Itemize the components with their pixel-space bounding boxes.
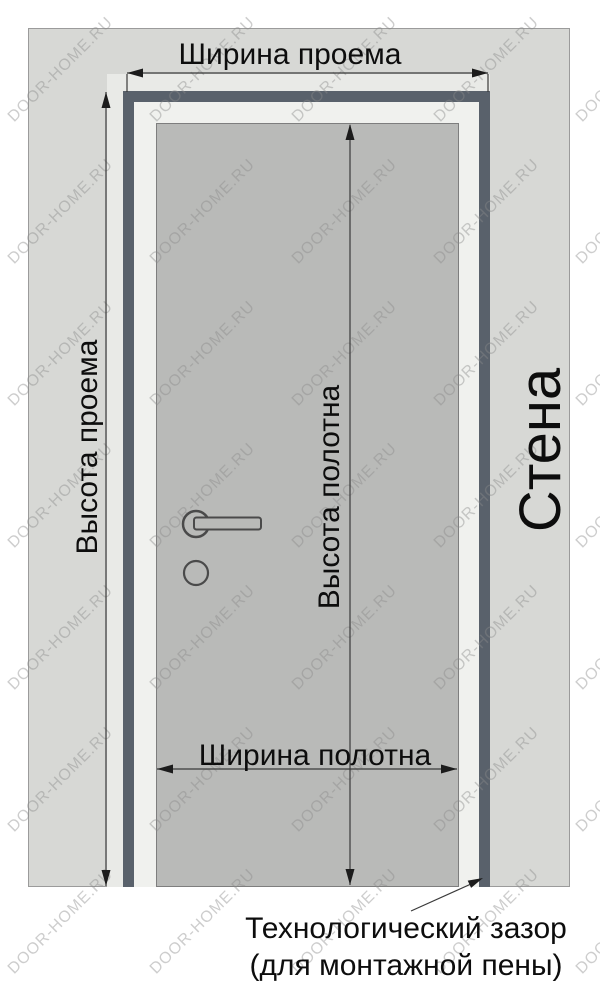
arrowhead-icon bbox=[127, 69, 143, 78]
label-wall: Стена bbox=[511, 368, 571, 532]
gap-annotation-line2: (для монтажной пены) bbox=[245, 947, 567, 984]
label-leaf-height: Высота полотна bbox=[314, 385, 346, 610]
door-handle-icon bbox=[183, 511, 261, 585]
label-opening-width: Ширина проема bbox=[179, 39, 402, 71]
gap-annotation: Технологический зазор (для монтажной пен… bbox=[245, 910, 567, 984]
label-opening-height: Высота проема bbox=[72, 340, 104, 555]
arrowhead-icon bbox=[472, 69, 488, 78]
label-leaf-width: Ширина полотна bbox=[199, 740, 431, 772]
arrowhead-icon bbox=[102, 92, 111, 108]
door-installation-diagram: DOOR-HOME.RUDOOR-HOME.RUDOOR-HOME.RUDOOR… bbox=[0, 0, 600, 990]
annotation-leader-line bbox=[411, 884, 471, 911]
arrowhead-icon bbox=[346, 124, 355, 140]
handle-lever-icon bbox=[194, 518, 261, 530]
gap-annotation-line1: Технологический зазор bbox=[245, 910, 567, 947]
arrowhead-icon bbox=[468, 878, 483, 888]
arrowhead-icon bbox=[157, 765, 173, 774]
keyhole-icon bbox=[184, 561, 208, 585]
arrowhead-icon bbox=[102, 870, 111, 886]
arrowhead-icon bbox=[346, 869, 355, 885]
arrowhead-icon bbox=[441, 765, 457, 774]
